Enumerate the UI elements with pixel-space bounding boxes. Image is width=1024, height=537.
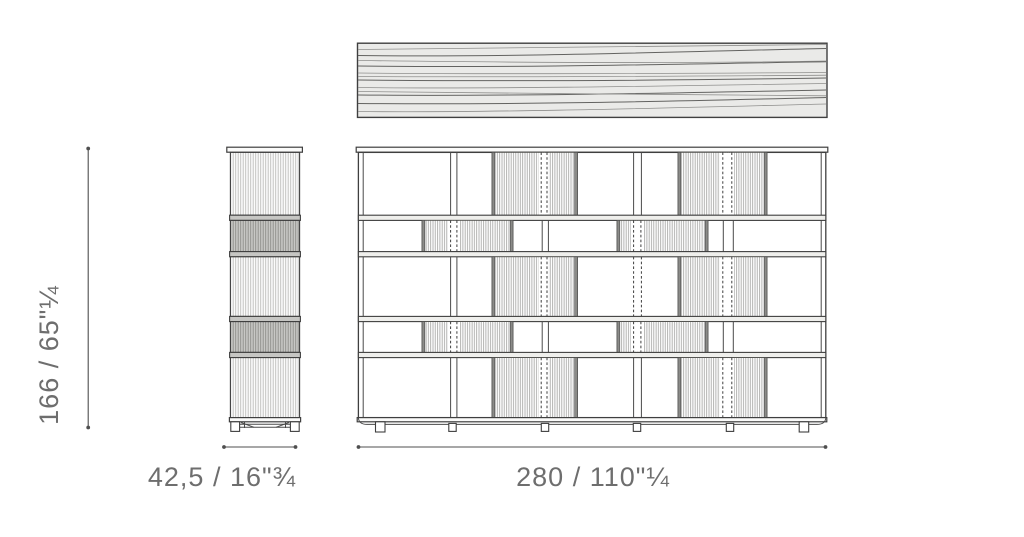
front-shelf-2 — [358, 252, 825, 257]
front-foot — [799, 422, 809, 432]
depth-dimension-line — [222, 445, 297, 449]
side-view — [227, 147, 303, 431]
side-shelf-1 — [230, 215, 301, 220]
dimension-drawing: 166 / 65"¼ 42,5 / 16"¾ 280 / 110"¼ — [0, 0, 1024, 537]
sliding-panel — [492, 257, 578, 317]
front-foot — [376, 422, 386, 432]
front-foot — [726, 423, 733, 431]
top-view-panel — [358, 43, 828, 117]
sliding-panel — [422, 322, 513, 353]
front-foot — [541, 423, 548, 431]
side-section-1 — [230, 152, 299, 215]
side-shelf-3 — [230, 316, 301, 321]
side-section-5 — [230, 358, 299, 418]
front-top-cap — [356, 147, 828, 152]
sliding-panel — [617, 322, 708, 353]
front-shelf-1 — [358, 215, 825, 220]
height-dimension-line — [86, 147, 90, 430]
sliding-panel — [492, 358, 578, 418]
front-shelf-4 — [358, 352, 825, 357]
drawing-canvas — [0, 0, 1024, 537]
depth-dimension-label: 42,5 / 16"¾ — [72, 460, 372, 494]
sliding-panel — [422, 220, 513, 251]
front-foot — [633, 423, 640, 431]
front-view — [356, 147, 828, 432]
width-dimension-label: 280 / 110"¼ — [443, 460, 743, 494]
side-shelf-2 — [230, 252, 301, 257]
sliding-panel — [492, 152, 578, 215]
side-section-3 — [230, 257, 299, 317]
side-base — [231, 422, 299, 432]
side-section-4 — [230, 322, 299, 353]
side-shelf-4 — [230, 352, 301, 357]
front-shelf-3 — [358, 316, 825, 321]
front-foot — [449, 423, 456, 431]
side-bottom-rail — [229, 418, 300, 422]
side-foot-right — [290, 422, 299, 432]
side-foot-left — [231, 422, 240, 432]
sliding-panel — [617, 220, 708, 251]
side-top-cap — [227, 147, 303, 152]
side-section-2 — [230, 220, 299, 251]
height-dimension-label: 166 / 65"¼ — [32, 205, 66, 505]
width-dimension-line — [357, 445, 828, 449]
front-bottom-rail — [357, 418, 827, 422]
